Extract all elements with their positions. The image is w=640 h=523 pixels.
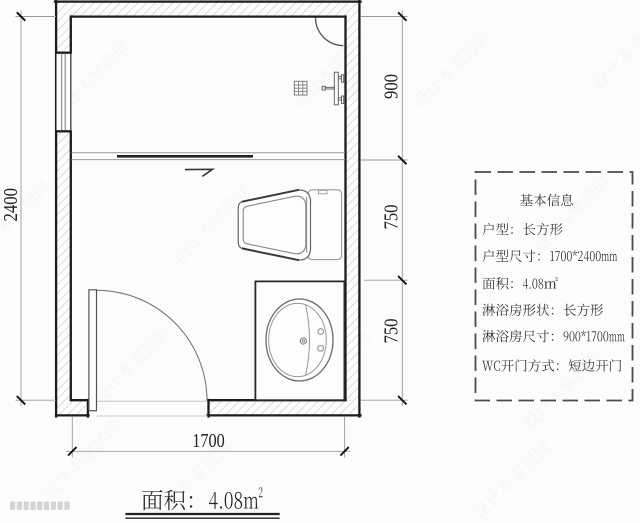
svg-text:750: 750 [382, 205, 403, 230]
svg-text:2400: 2400 [1, 188, 22, 222]
svg-text:900: 900 [382, 74, 403, 99]
svg-text:750: 750 [382, 319, 403, 344]
svg-text:1700: 1700 [192, 431, 224, 452]
